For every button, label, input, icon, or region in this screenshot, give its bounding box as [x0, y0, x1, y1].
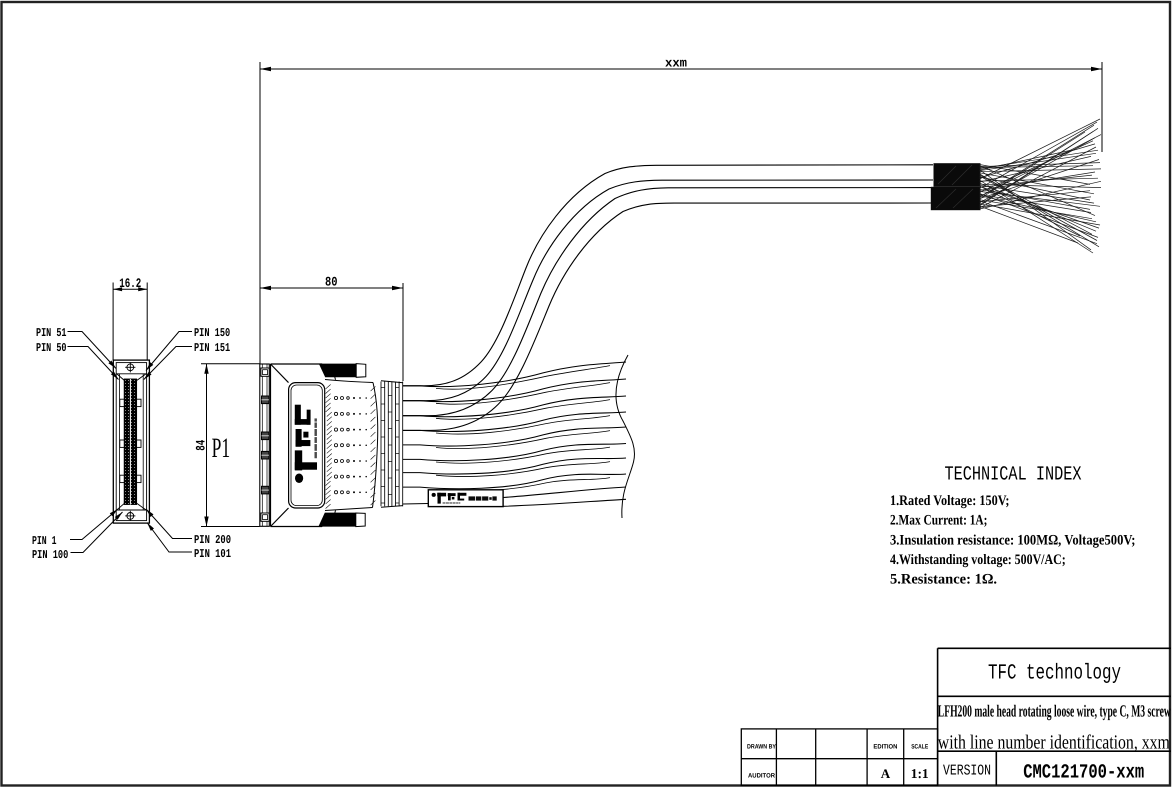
svg-text:A: A — [881, 766, 891, 781]
svg-text:84: 84 — [194, 440, 209, 451]
svg-text:PIN 1: PIN 1 — [32, 534, 57, 548]
svg-text:PIN 151: PIN 151 — [194, 341, 230, 355]
svg-text:5.Resistance: 1Ω.: 5.Resistance: 1Ω. — [890, 572, 997, 588]
svg-text:PIN 50: PIN 50 — [36, 341, 67, 355]
svg-text:PIN 101: PIN 101 — [194, 547, 231, 561]
svg-text:PIN 200: PIN 200 — [194, 533, 231, 547]
svg-text:1:1: 1:1 — [911, 766, 929, 781]
svg-text:xxm: xxm — [665, 57, 687, 71]
svg-text:TFC technology: TFC technology — [988, 662, 1121, 686]
svg-text:TECHNICAL INDEX: TECHNICAL INDEX — [945, 464, 1082, 487]
svg-text:PIN 100: PIN 100 — [32, 548, 68, 562]
svg-text:SCALE: SCALE — [911, 744, 928, 751]
svg-text:DRAWN BY: DRAWN BY — [747, 744, 777, 751]
svg-text:3.Insulation resistance: 100MΩ: 3.Insulation resistance: 100MΩ, Voltage5… — [890, 533, 1136, 549]
svg-text:EDITION: EDITION — [873, 744, 897, 751]
svg-text:80: 80 — [325, 275, 338, 290]
svg-text:with line number identificatio: with line number identification, xxm — [938, 732, 1170, 754]
svg-text:2.Max Current: 1A;: 2.Max Current: 1A; — [890, 513, 987, 529]
svg-text:1.Rated Voltage: 150V;: 1.Rated Voltage: 150V; — [890, 493, 1010, 509]
svg-text:CMC121700-xxm: CMC121700-xxm — [1023, 762, 1144, 785]
svg-text:16.2: 16.2 — [119, 276, 141, 291]
svg-text:VERSION: VERSION — [943, 763, 991, 780]
svg-text:P1: P1 — [212, 433, 231, 464]
svg-text:PIN 150: PIN 150 — [194, 326, 230, 340]
svg-text:PIN 51: PIN 51 — [36, 326, 67, 340]
svg-text:4.Withstanding voltage: 500V/A: 4.Withstanding voltage: 500V/AC; — [890, 552, 1066, 568]
svg-text:AUDITOR: AUDITOR — [748, 773, 775, 780]
svg-text:LFH200 male head rotating loos: LFH200 male head rotating loose wire, ty… — [938, 702, 1171, 721]
